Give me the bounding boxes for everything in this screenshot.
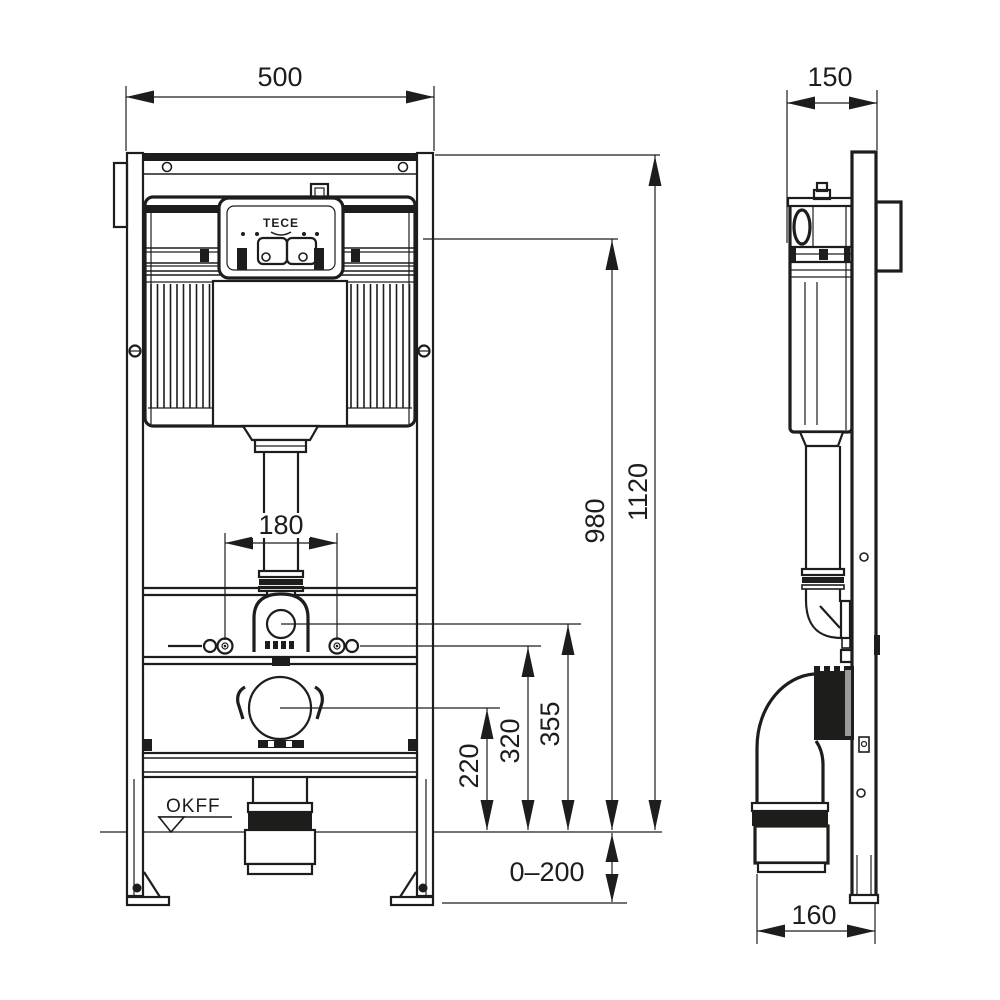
flush-elbow-side (806, 589, 842, 638)
side-view: 150 160 (752, 62, 901, 944)
arrow-down-icon (481, 800, 494, 830)
outlet-pipe (245, 777, 315, 874)
drain-elbow-side (752, 666, 854, 872)
arrow-up-icon (606, 834, 619, 862)
drain-socket-side (755, 826, 828, 863)
access-panel: TECE (219, 184, 343, 278)
flush-valve-outlet (243, 426, 318, 440)
drain-socket (238, 657, 500, 748)
mounting-studs (168, 639, 541, 654)
dim-total-height-label: 1120 (623, 463, 653, 521)
dim-stud-height: 320 (495, 646, 535, 830)
dim-flush-bend-height: 355 (535, 624, 575, 830)
arrow-down-icon (562, 800, 575, 830)
arrow-left-icon (787, 97, 815, 110)
arrow-right-icon (849, 97, 877, 110)
technical-drawing: TECE (0, 0, 1000, 1000)
top-crossbar-cap (127, 153, 433, 161)
top-hole-left (163, 163, 172, 172)
arrow-up-icon (522, 647, 535, 677)
outlet-socket (245, 830, 315, 864)
dim-front-width: 500 (126, 62, 434, 151)
arrow-down-icon (606, 874, 619, 902)
arrow-down-icon (649, 800, 662, 830)
arrow-right-icon (309, 537, 337, 550)
floor-marker-label: OKFF (166, 796, 221, 817)
wall-bracket (876, 202, 901, 271)
dim-stud-spacing-label: 180 (258, 510, 303, 540)
arrow-left-icon (757, 925, 785, 938)
cistern-body-side (790, 203, 852, 432)
outlet-seal (248, 812, 312, 830)
dim-flush-bend-height-label: 355 (535, 701, 565, 746)
arrow-down-icon (522, 800, 535, 830)
dim-outlet-height-label: 220 (454, 743, 484, 788)
rail-foot (850, 895, 878, 903)
panel-bolt-left (237, 248, 247, 270)
rail-side (850, 152, 880, 903)
right-rail (417, 153, 433, 896)
drain-seal-side (752, 811, 828, 826)
panel-bolt-right (314, 248, 324, 270)
arrow-down-icon (606, 800, 619, 830)
arrow-up-icon (481, 709, 494, 739)
top-hole-right (399, 163, 408, 172)
arrow-left-icon (225, 537, 253, 550)
arrow-right-icon (847, 925, 875, 938)
side-tab (114, 163, 127, 227)
dim-frame-depth-label: 150 (807, 62, 852, 92)
floor-marker: OKFF (158, 796, 232, 832)
cistern-outlet-taper (800, 432, 843, 446)
dim-leg-adjustment-label: 0–200 (509, 857, 584, 887)
dim-leg-adjustment: 0–200 (442, 833, 627, 903)
clip-left (200, 249, 209, 262)
dim-actuation-height-label: 980 (580, 498, 610, 543)
dim-front-width-label: 500 (257, 62, 302, 92)
arrow-up-icon (562, 625, 575, 655)
cistern-center-panel (213, 281, 347, 426)
dim-stud-height-label: 320 (495, 718, 525, 763)
arrow-right-icon (406, 91, 434, 104)
drawing-svg: TECE (0, 0, 1000, 1000)
arrow-left-icon (126, 91, 154, 104)
left-rail (127, 153, 143, 896)
coupling (259, 571, 303, 577)
dim-outlet-height: 220 (454, 708, 494, 830)
dim-outlet-offset-label: 160 (791, 900, 836, 930)
flush-pipe-side (802, 446, 852, 662)
front-view: TECE (100, 62, 662, 905)
level-triangle-icon (159, 817, 184, 832)
arrow-up-icon (606, 240, 619, 270)
clip-right (351, 249, 360, 262)
tece-logo: TECE (263, 216, 299, 230)
cistern-profile (788, 183, 852, 446)
arrow-up-icon (649, 156, 662, 186)
